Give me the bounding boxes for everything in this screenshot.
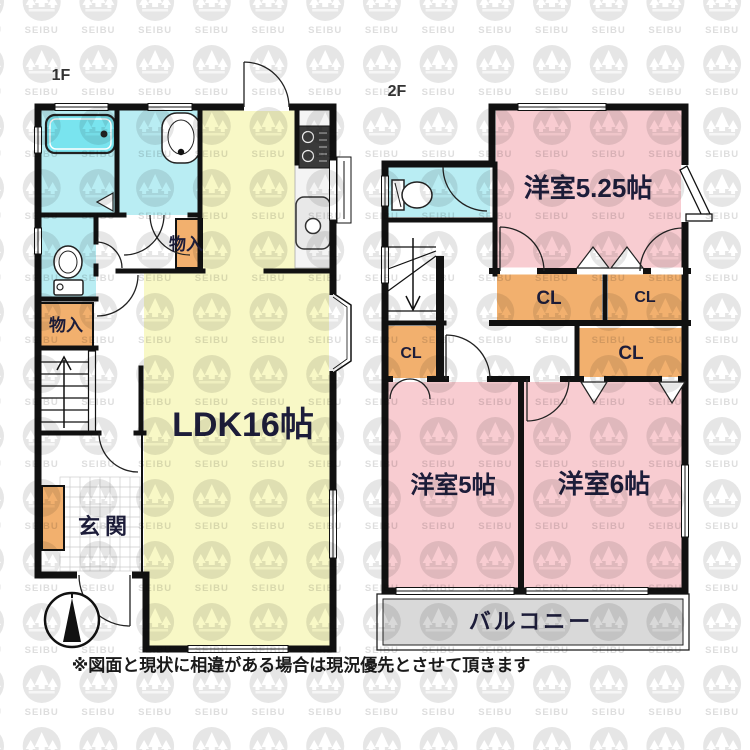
label-closet-low: CL <box>618 343 644 364</box>
kitchen-door-opening <box>244 103 289 111</box>
floor2-label: 2F <box>388 83 407 100</box>
corridor-door <box>97 275 138 316</box>
toilet-2f-fixture <box>392 180 432 210</box>
washbasin <box>162 113 200 163</box>
floorplan-drawing: 1F LDK16帖 玄関 物入 物入 <box>0 0 750 750</box>
toilet-1f-fixture <box>54 246 83 295</box>
label-closet-big: CL <box>536 288 562 309</box>
label-closet-right: CL <box>634 289 656 306</box>
compass <box>45 593 99 647</box>
stairs-1f <box>40 350 96 433</box>
label-ldk: LDK16帖 <box>172 406 314 444</box>
washroom-door-left <box>124 215 164 255</box>
label-entrance: 玄関 <box>78 514 132 539</box>
floorplan-page: 1F LDK16帖 玄関 物入 物入 <box>0 0 750 750</box>
bedroom-5-door <box>446 335 490 379</box>
label-bedroom-5: 洋室5帖 <box>410 471 495 499</box>
label-balcony: バルコニー <box>469 609 594 634</box>
floor1-label: 1F <box>52 67 71 84</box>
shoe-cabinet <box>42 486 64 550</box>
label-storage-left: 物入 <box>49 315 83 335</box>
label-storage-hall: 物入 <box>169 234 203 254</box>
label-closet-left: CL <box>400 345 422 362</box>
disclaimer-caption: ※図面と現状に相違がある場合は現況優先とさせて頂きます <box>72 655 531 675</box>
slider-door-bay <box>337 157 351 223</box>
entrance-hall-door <box>99 433 138 472</box>
label-bedroom-6: 洋室6帖 <box>558 469 650 499</box>
front-door-opening <box>77 572 132 579</box>
floor-1f: 1F LDK16帖 玄関 物入 物入 <box>35 62 352 653</box>
label-bedroom-525: 洋室5.25帖 <box>524 173 653 203</box>
bathtub <box>46 115 115 153</box>
bay-window <box>333 293 351 373</box>
kitchen-sink <box>296 197 330 249</box>
floor-2f: 2F 洋室5.25帖 洋室5帖 洋室6帖 CL CL CL CL バルコニー <box>377 83 712 650</box>
stairs-2f <box>388 224 438 324</box>
toilet-1f-door <box>96 242 122 268</box>
stove <box>299 126 330 168</box>
kitchen-back-door <box>244 62 289 107</box>
